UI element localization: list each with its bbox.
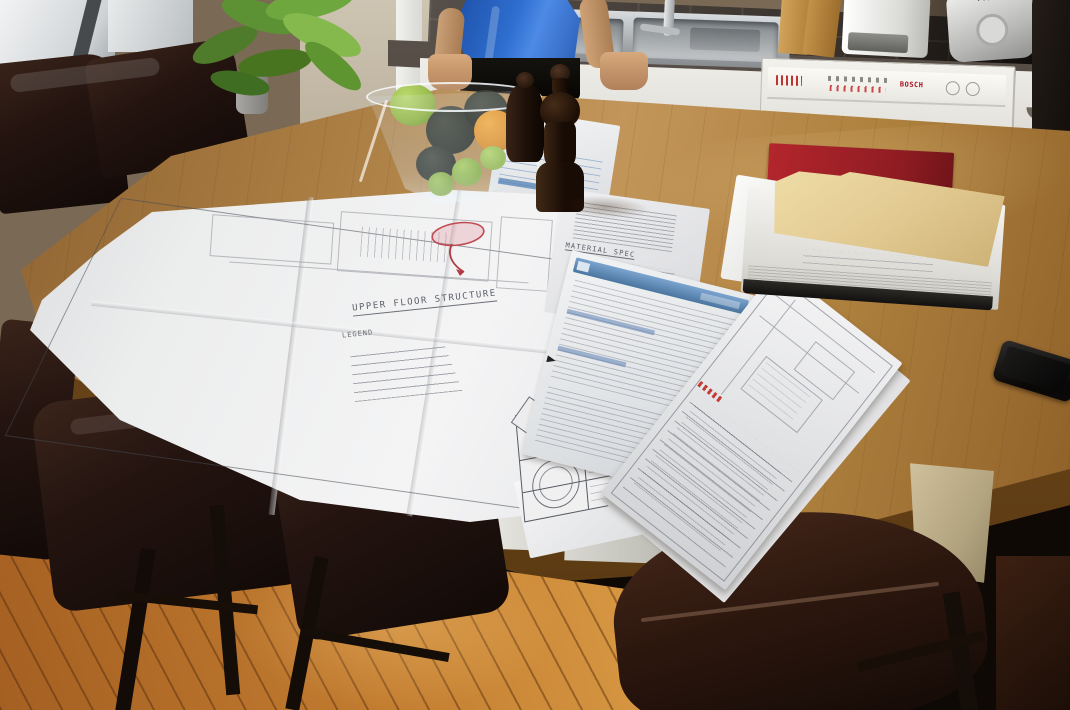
- dishwasher-brand-label: BOSCH: [900, 80, 924, 89]
- dishwasher-control-panel: BOSCH: [767, 67, 1006, 107]
- plant-foliage: [180, 0, 355, 132]
- pepper-grinder-tall: [532, 64, 586, 212]
- stool-right-corner: [996, 556, 1070, 710]
- man-right-hand: [600, 52, 648, 90]
- kitchen-photo-scene: BOSCH T-Fal: [0, 0, 1070, 710]
- canister: [841, 0, 930, 58]
- tfal-appliance: T-Fal: [946, 0, 1037, 63]
- red-annotation-markup: [418, 218, 508, 288]
- tfal-brand-label: T-Fal: [976, 0, 995, 3]
